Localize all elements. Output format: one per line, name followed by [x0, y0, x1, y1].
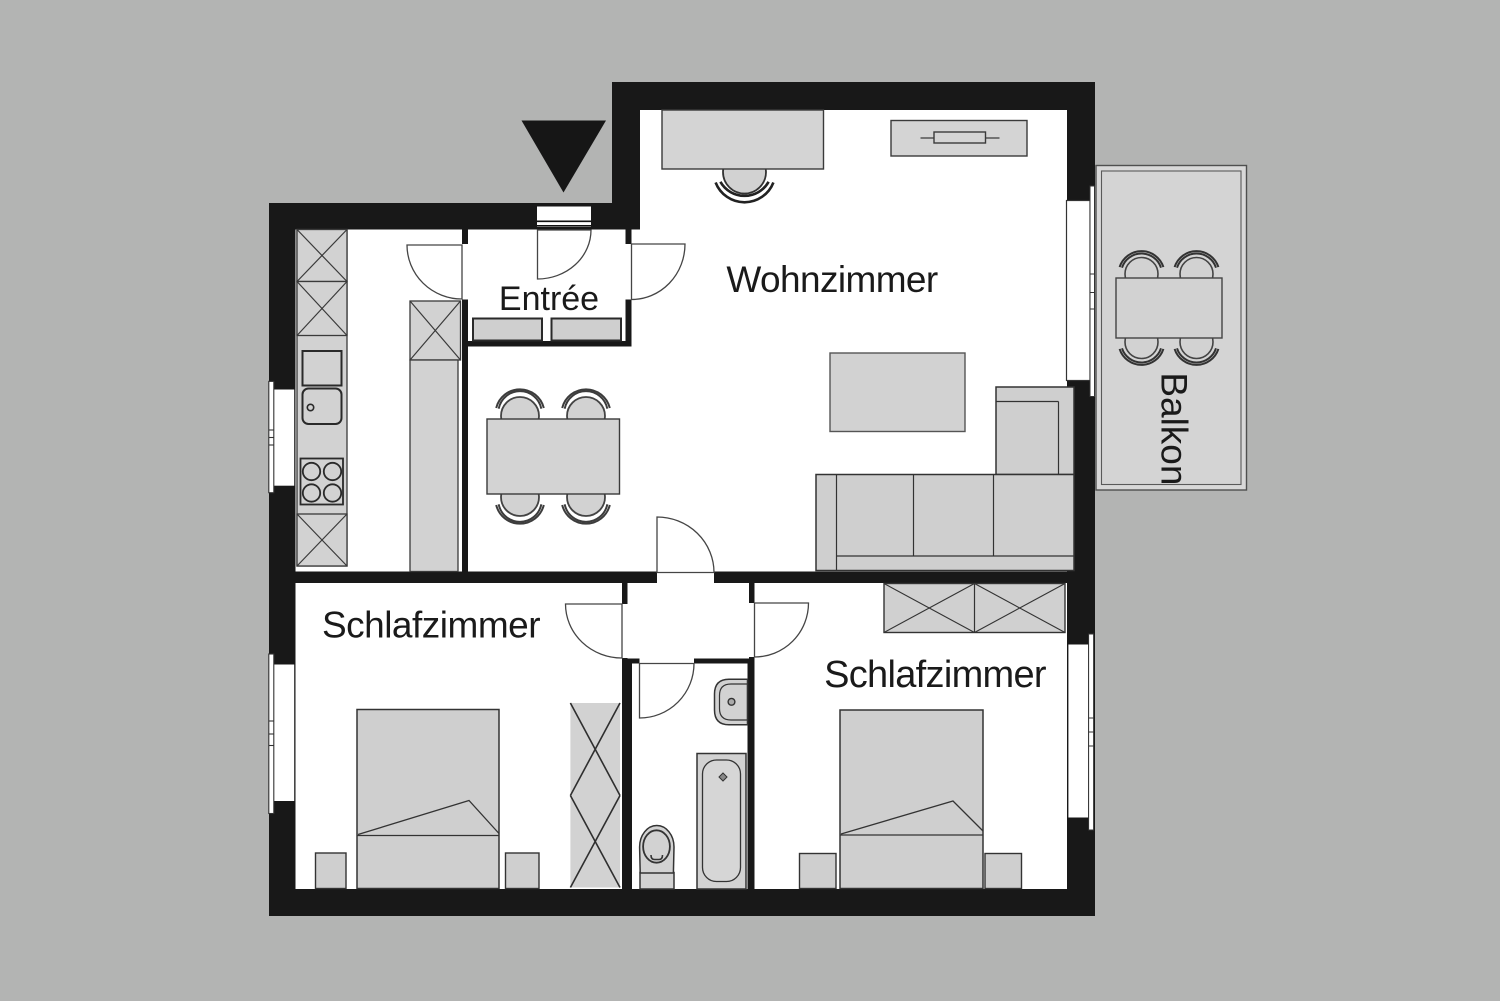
svg-text:Schlafzimmer: Schlafzimmer [322, 605, 540, 646]
svg-text:Balkon: Balkon [1154, 372, 1195, 485]
svg-text:Schlafzimmer: Schlafzimmer [824, 654, 1047, 696]
svg-text:Entrée: Entrée [499, 280, 599, 318]
svg-text:Wohnzimmer: Wohnzimmer [726, 259, 938, 300]
